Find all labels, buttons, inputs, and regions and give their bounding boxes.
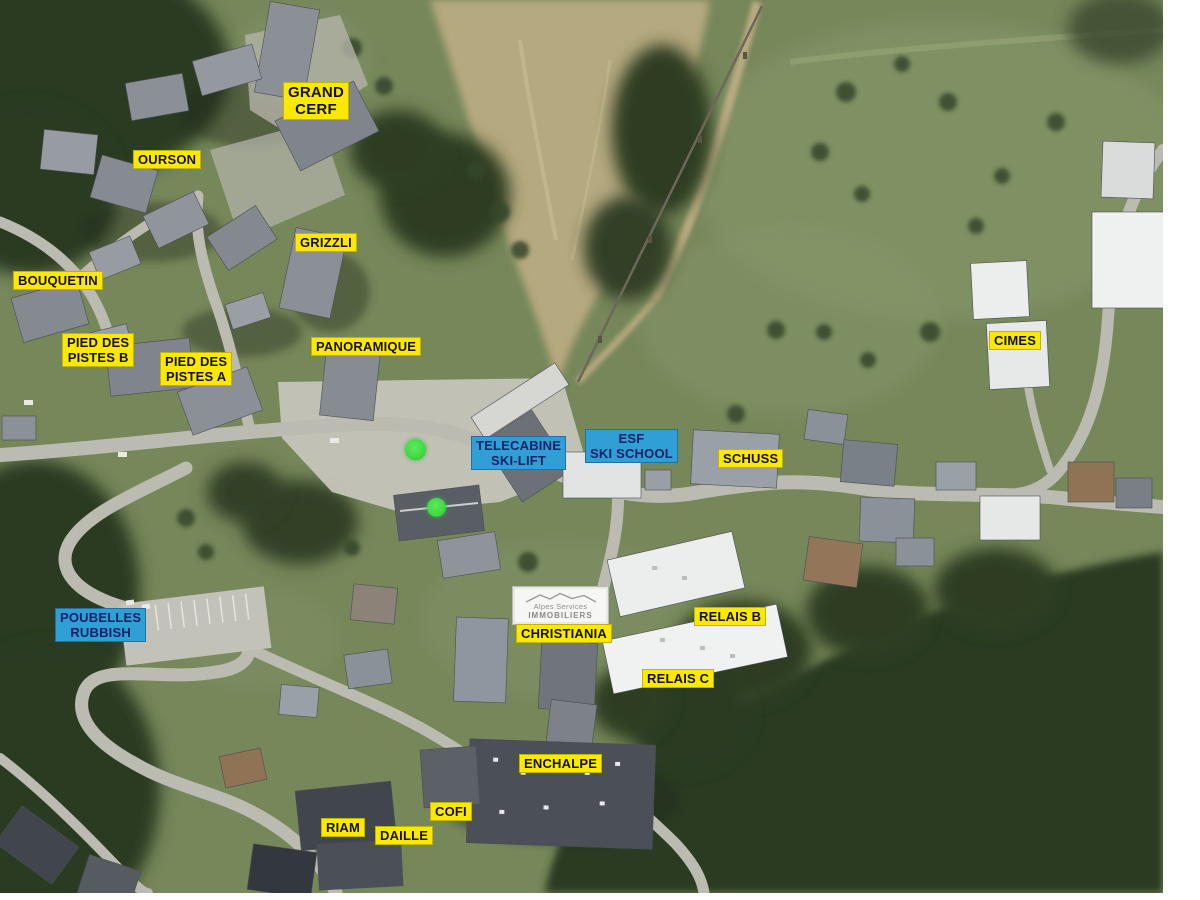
alpes-services-logo: Alpes Services IMMOBILIERS <box>512 586 609 625</box>
location-marker-dot-lower <box>427 498 446 517</box>
label-telecabine-ski-lift: TELECABINE SKI-LIFT <box>471 436 566 470</box>
label-poubelles-rubbish: POUBELLES RUBBISH <box>55 608 146 642</box>
location-marker-dot-upper <box>405 439 426 460</box>
label-relais-b: RELAIS B <box>694 607 766 626</box>
label-grizzli: GRIZZLI <box>295 233 357 252</box>
label-bouquetin: BOUQUETIN <box>13 271 103 290</box>
logo-text-line1: Alpes Services <box>534 603 588 611</box>
label-schuss: SCHUSS <box>718 449 783 468</box>
resort-aerial-map: Alpes Services IMMOBILIERS GRAND CERF OU… <box>0 0 1163 893</box>
label-grand-cerf: GRAND CERF <box>283 82 349 120</box>
label-cimes: CIMES <box>989 331 1041 350</box>
label-relais-c: RELAIS C <box>642 669 714 688</box>
label-cofi: COFI <box>430 802 472 821</box>
logo-text-line2: IMMOBILIERS <box>528 611 592 620</box>
label-christiania: CHRISTIANIA <box>516 624 612 643</box>
label-riam: RIAM <box>321 818 365 837</box>
label-pied-des-pistes-a: PIED DES PISTES A <box>160 352 232 386</box>
label-daille: DAILLE <box>375 826 433 845</box>
screenshot-root: Alpes Services IMMOBILIERS GRAND CERF OU… <box>0 0 1200 900</box>
mountain-ridge-icon <box>524 592 598 603</box>
label-panoramique: PANORAMIQUE <box>311 337 421 356</box>
label-esf-ski-school: ESF SKI SCHOOL <box>585 429 678 463</box>
label-pied-des-pistes-b: PIED DES PISTES B <box>62 333 134 367</box>
label-enchalpe: ENCHALPE <box>519 754 602 773</box>
label-ourson: OURSON <box>133 150 201 169</box>
